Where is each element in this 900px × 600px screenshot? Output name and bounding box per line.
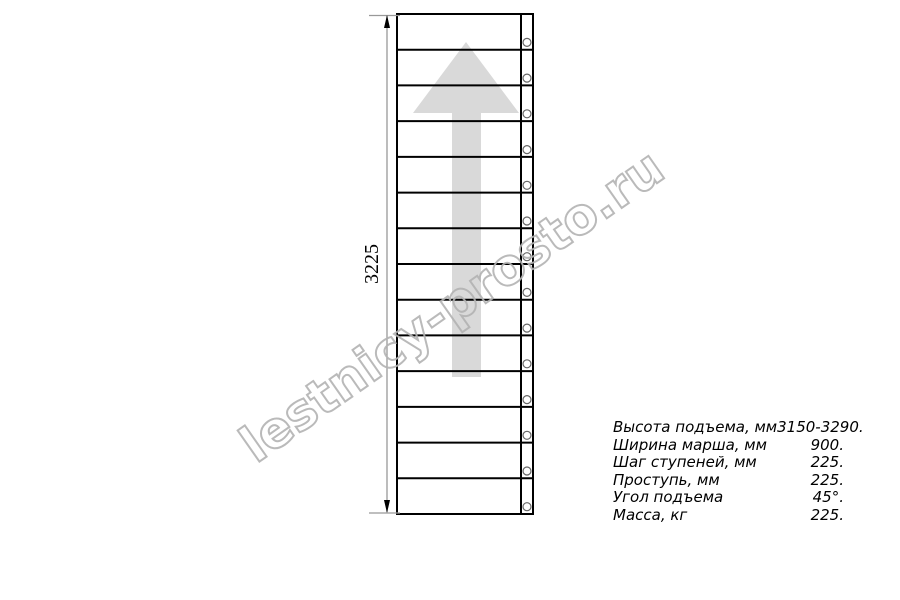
direction-arrow-up [413, 42, 519, 377]
spec-value: 225. [811, 507, 844, 525]
spec-row: Проступь, мм225. [613, 472, 844, 490]
spec-label: Угол подъема [613, 489, 723, 507]
bolt-circle [523, 181, 531, 189]
bolt-circle [523, 288, 531, 296]
spec-row: Угол подъема45°. [613, 489, 844, 507]
bolt-circle [523, 110, 531, 118]
dimension-label: 3225 [361, 244, 383, 284]
spec-label: Ширина марша, мм [613, 437, 767, 455]
spec-value: 3150-3290. [777, 419, 864, 437]
bolt-circle [523, 74, 531, 82]
spec-row: Ширина марша, мм900. [613, 437, 844, 455]
spec-value: 900. [811, 437, 844, 455]
spec-row: Шаг ступеней, мм225. [613, 454, 844, 472]
bolt-circle [523, 253, 531, 261]
bolt-circle [523, 503, 531, 511]
dimension-annotation: 3225 [361, 15, 400, 513]
spec-row: Высота подъема, мм3150-3290. [613, 419, 844, 437]
bolt-circle [523, 360, 531, 368]
spec-row: Масса, кг225. [613, 507, 844, 525]
bolt-circle [523, 217, 531, 225]
dimension-arrowhead-bottom [384, 500, 390, 513]
dimension-arrowhead-top [384, 15, 390, 28]
spec-label: Масса, кг [613, 507, 687, 525]
spec-value: 225. [811, 454, 844, 472]
drawing-canvas: 3225 lestnicy-prosto.ru Высота подъема, … [0, 0, 900, 600]
spec-table: Высота подъема, мм3150-3290.Ширина марша… [613, 419, 844, 524]
bolt-circle [523, 38, 531, 46]
bolt-circle [523, 396, 531, 404]
bolt-circles [523, 38, 531, 510]
spec-value: 225. [811, 472, 844, 490]
bolt-circle [523, 146, 531, 154]
bolt-circle [523, 467, 531, 475]
spec-label: Шаг ступеней, мм [613, 454, 757, 472]
bolt-circle [523, 431, 531, 439]
spec-value: 45°. [813, 489, 844, 507]
bolt-circle [523, 324, 531, 332]
spec-label: Проступь, мм [613, 472, 720, 490]
spec-label: Высота подъема, мм [613, 419, 777, 437]
